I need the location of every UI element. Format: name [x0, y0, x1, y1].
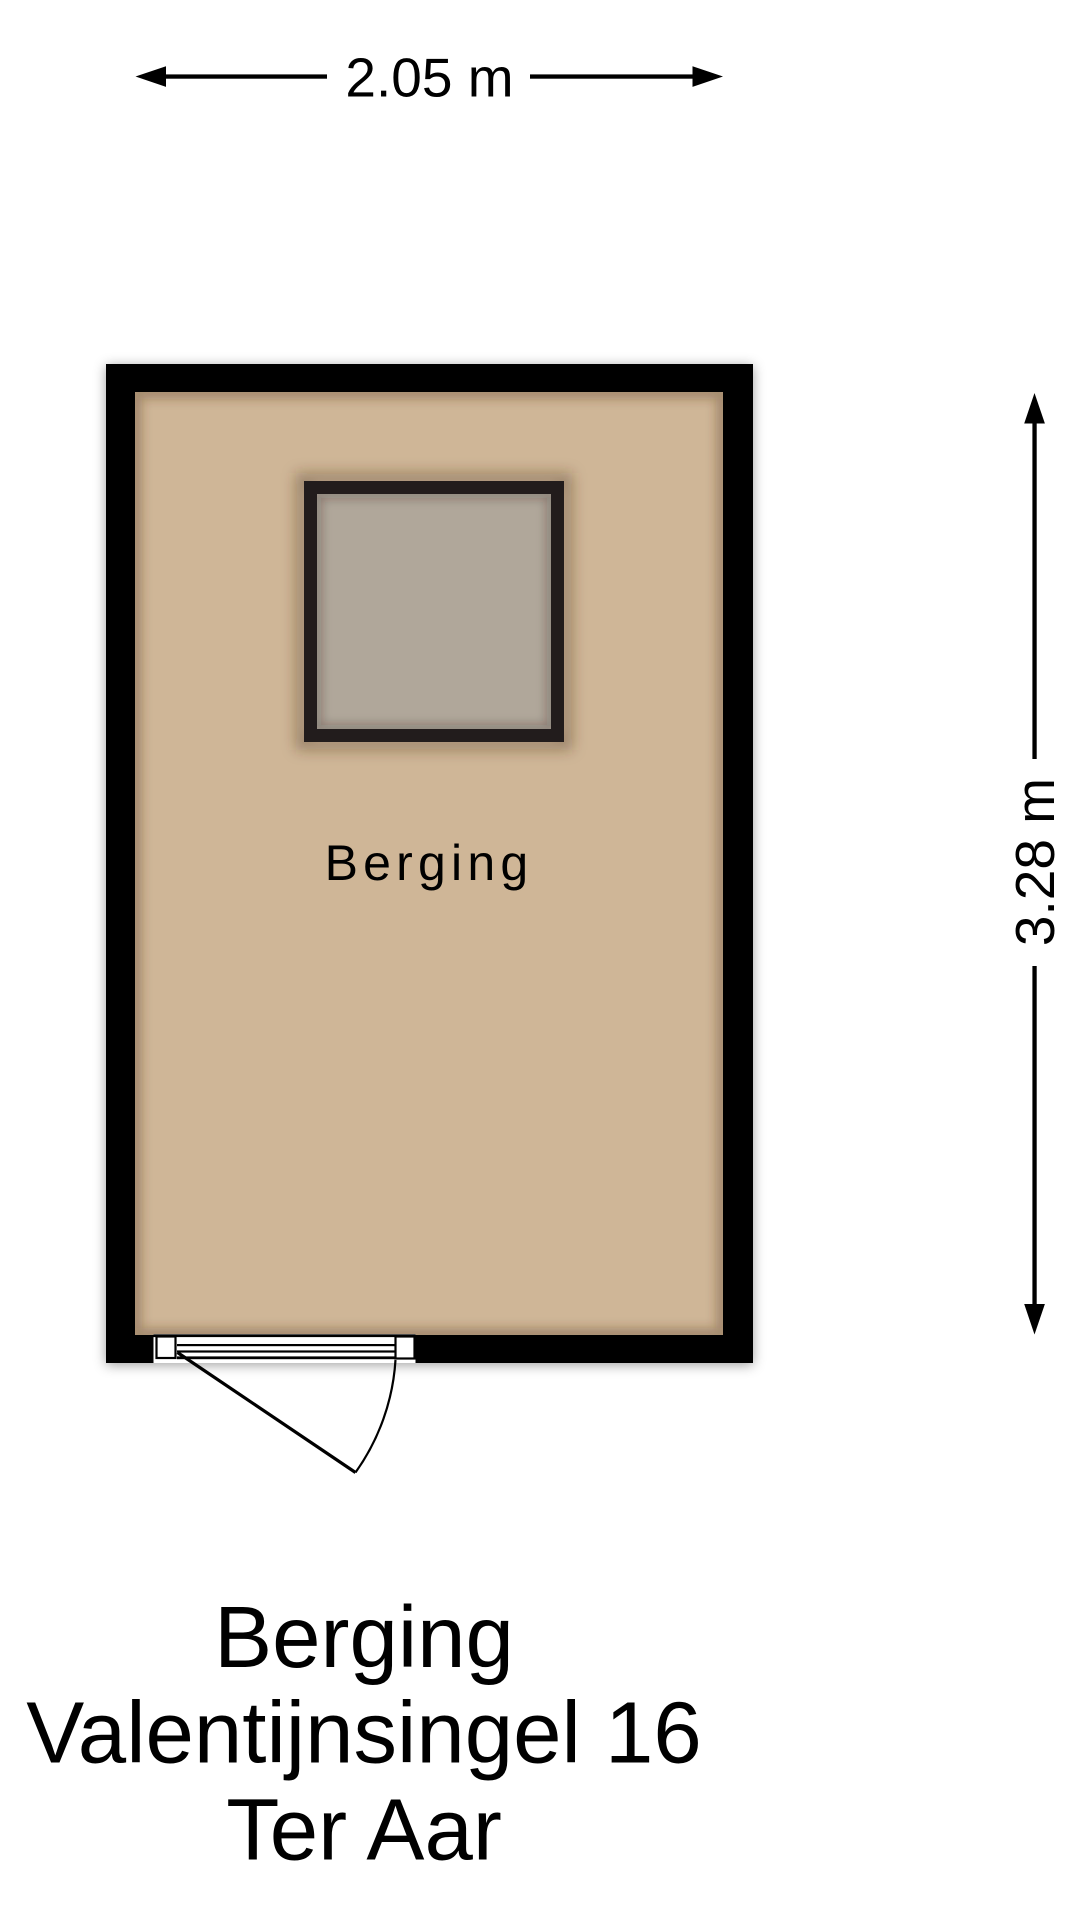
svg-text:Ter Aar: Ter Aar — [226, 1782, 502, 1879]
svg-text:Valentijnsingel 16: Valentijnsingel 16 — [26, 1685, 702, 1782]
svg-text:Berging: Berging — [214, 1589, 514, 1686]
svg-text:Berging: Berging — [325, 835, 534, 891]
svg-text:2.05 m: 2.05 m — [345, 46, 513, 108]
svg-text:3.28 m: 3.28 m — [1004, 778, 1066, 946]
